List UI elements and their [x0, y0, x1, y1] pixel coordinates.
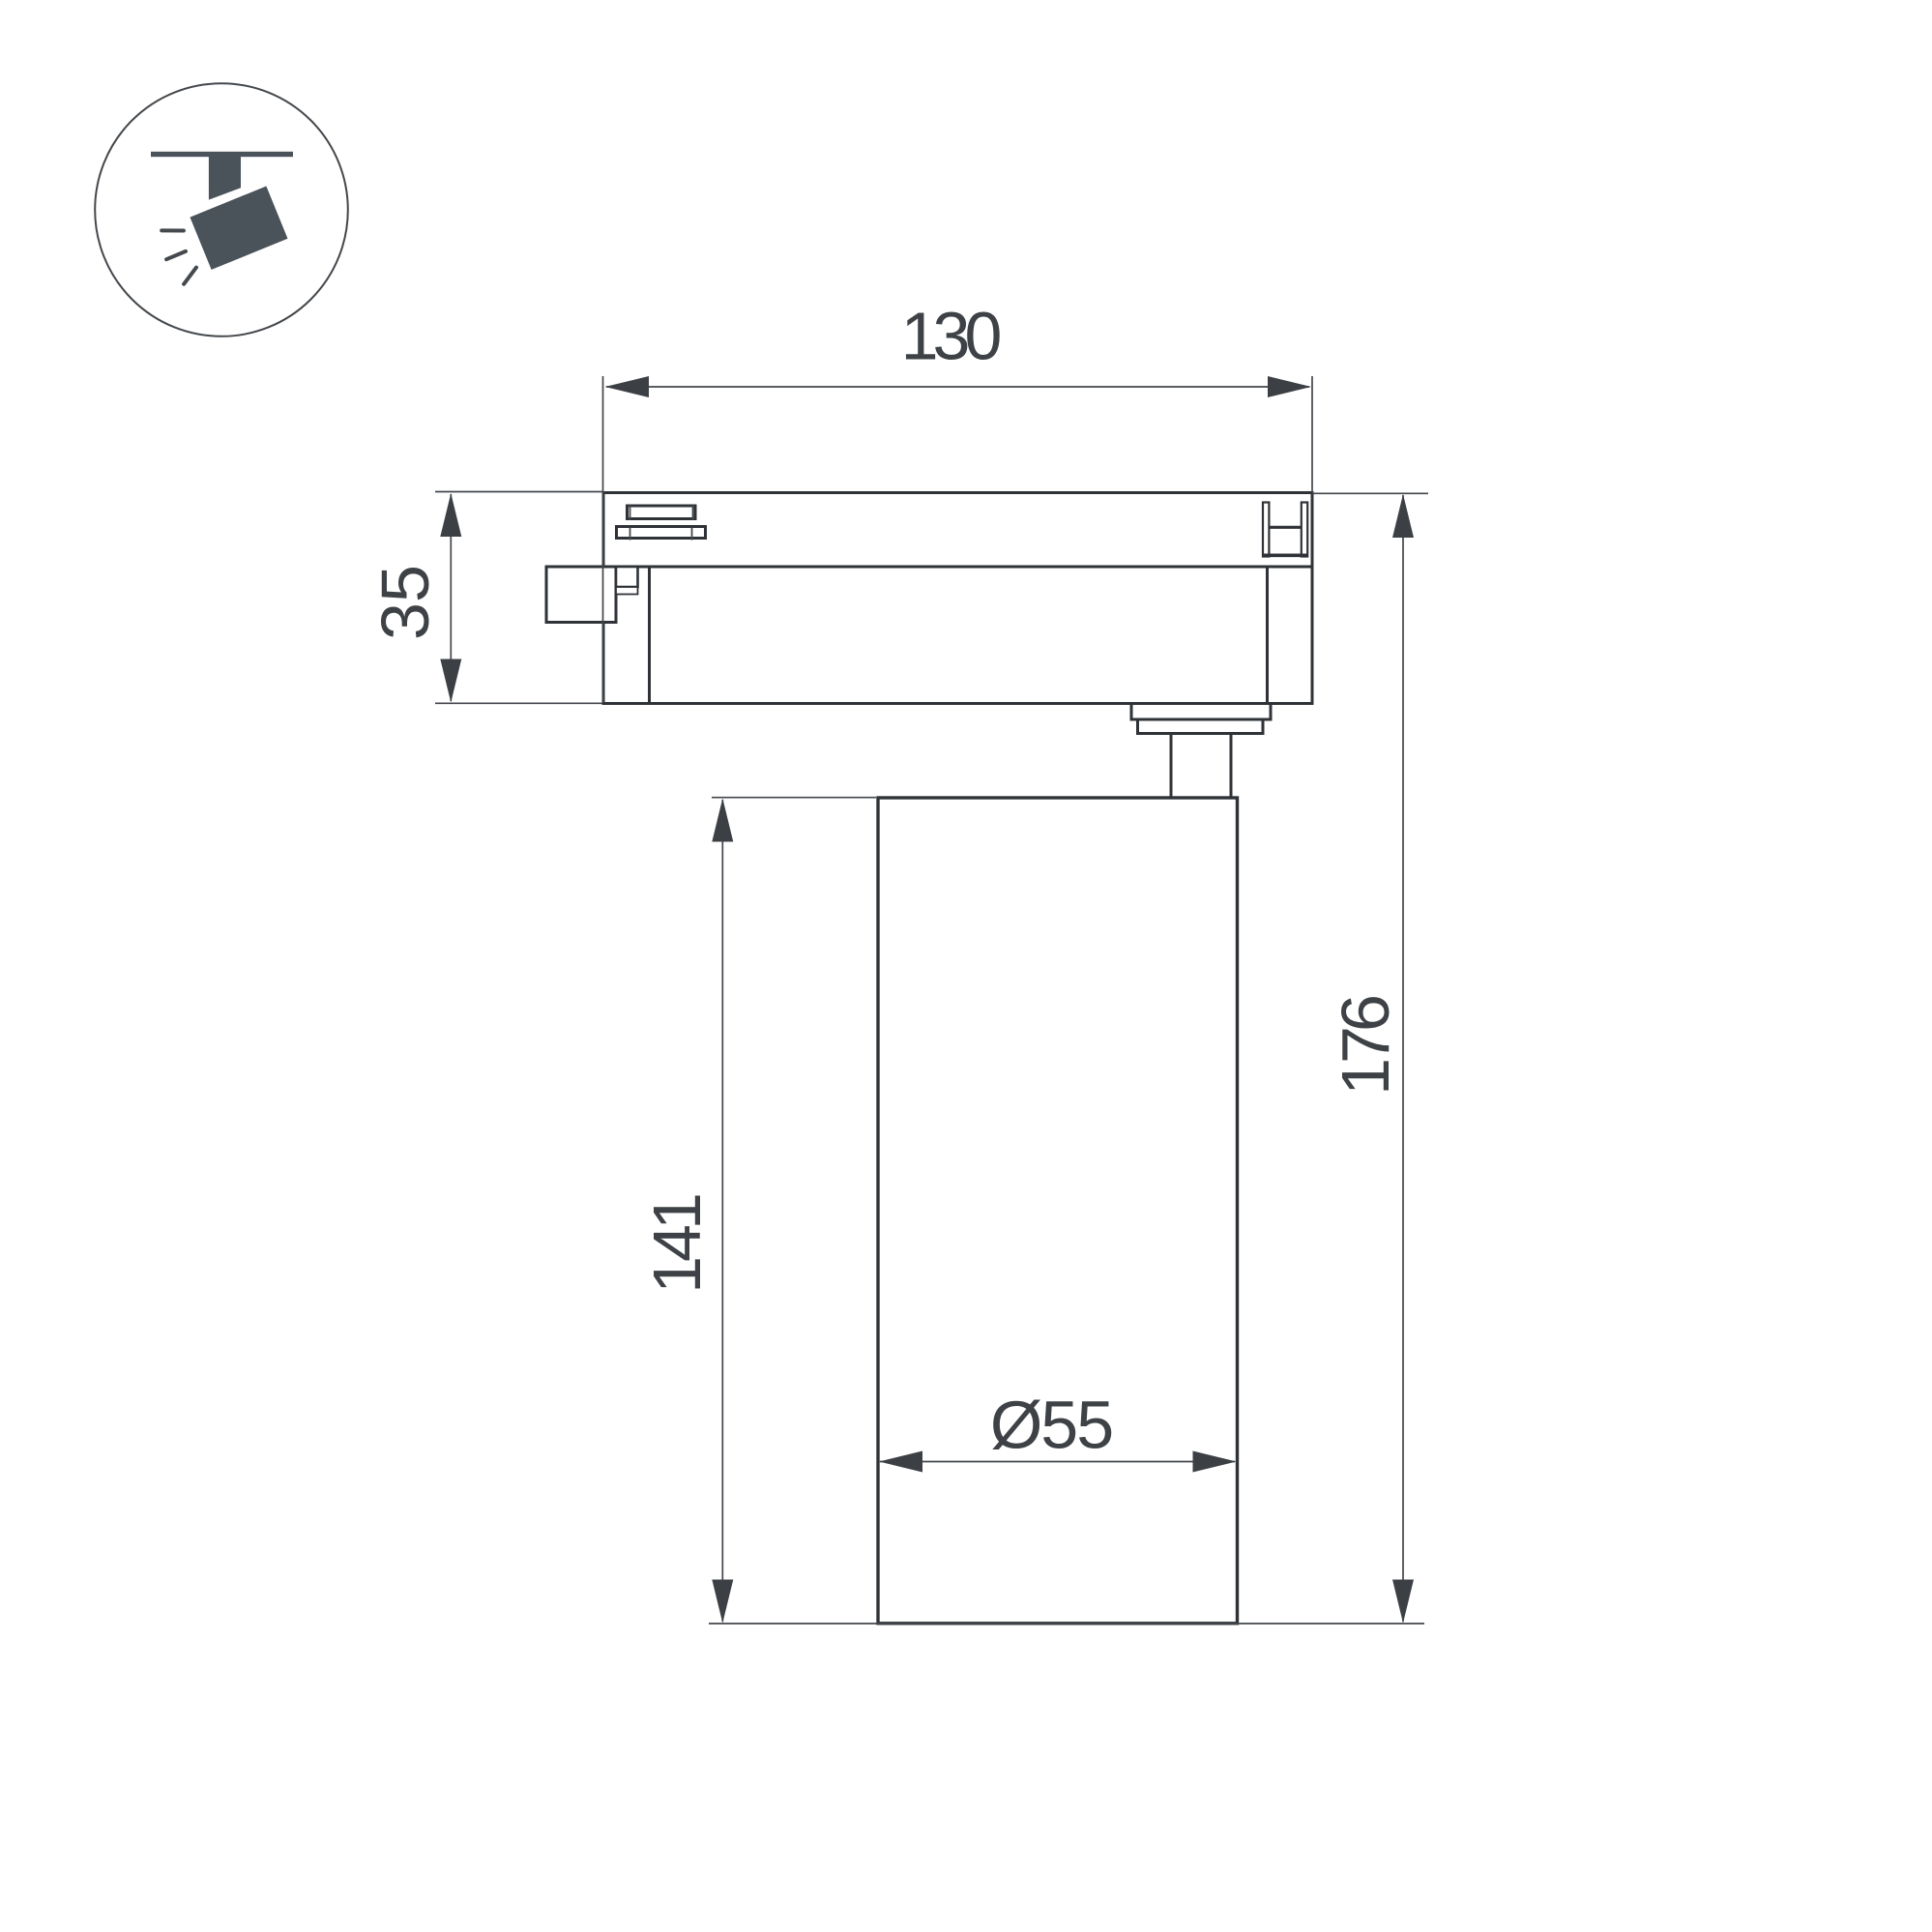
- svg-text:35: 35: [367, 565, 443, 640]
- svg-text:130: 130: [901, 298, 1001, 373]
- svg-text:141: 141: [639, 1195, 715, 1294]
- svg-text:176: 176: [1328, 997, 1403, 1096]
- svg-text:Ø55: Ø55: [990, 1388, 1112, 1463]
